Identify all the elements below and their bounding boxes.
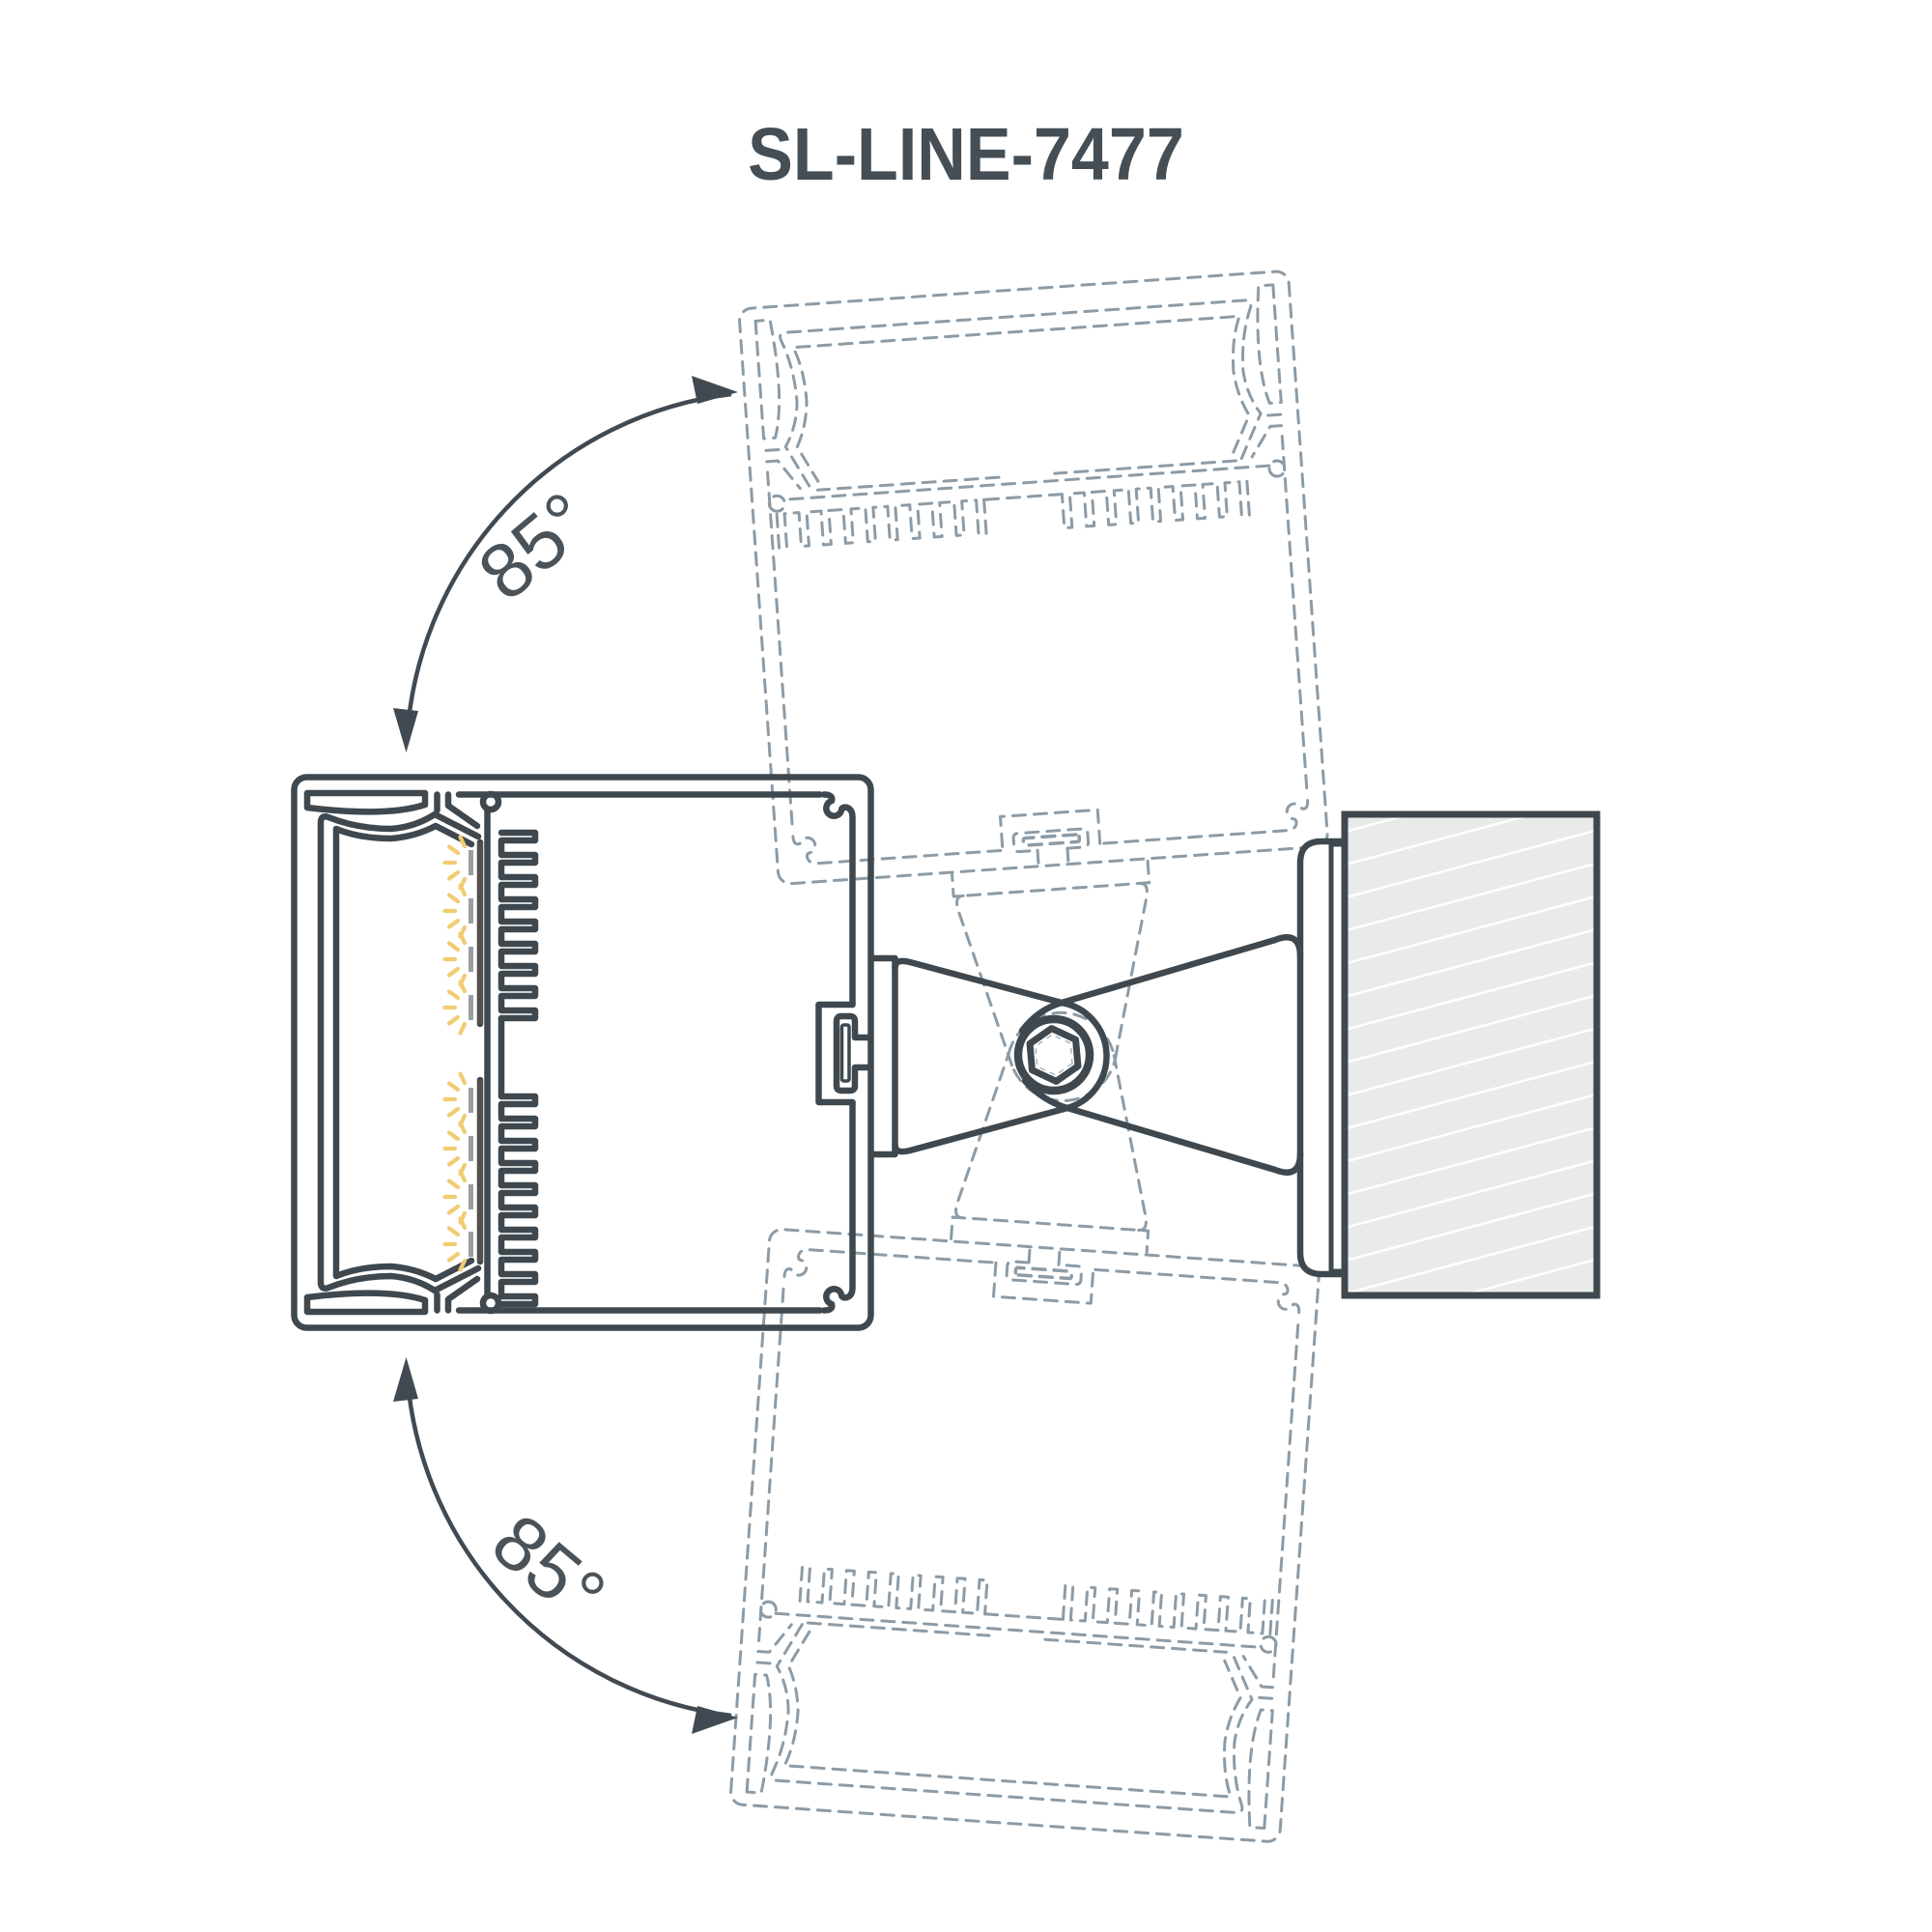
svg-text:SL-LINE-7477: SL-LINE-7477 <box>748 112 1184 196</box>
svg-text:85°: 85° <box>463 475 608 616</box>
svg-text:85°: 85° <box>476 1497 621 1638</box>
